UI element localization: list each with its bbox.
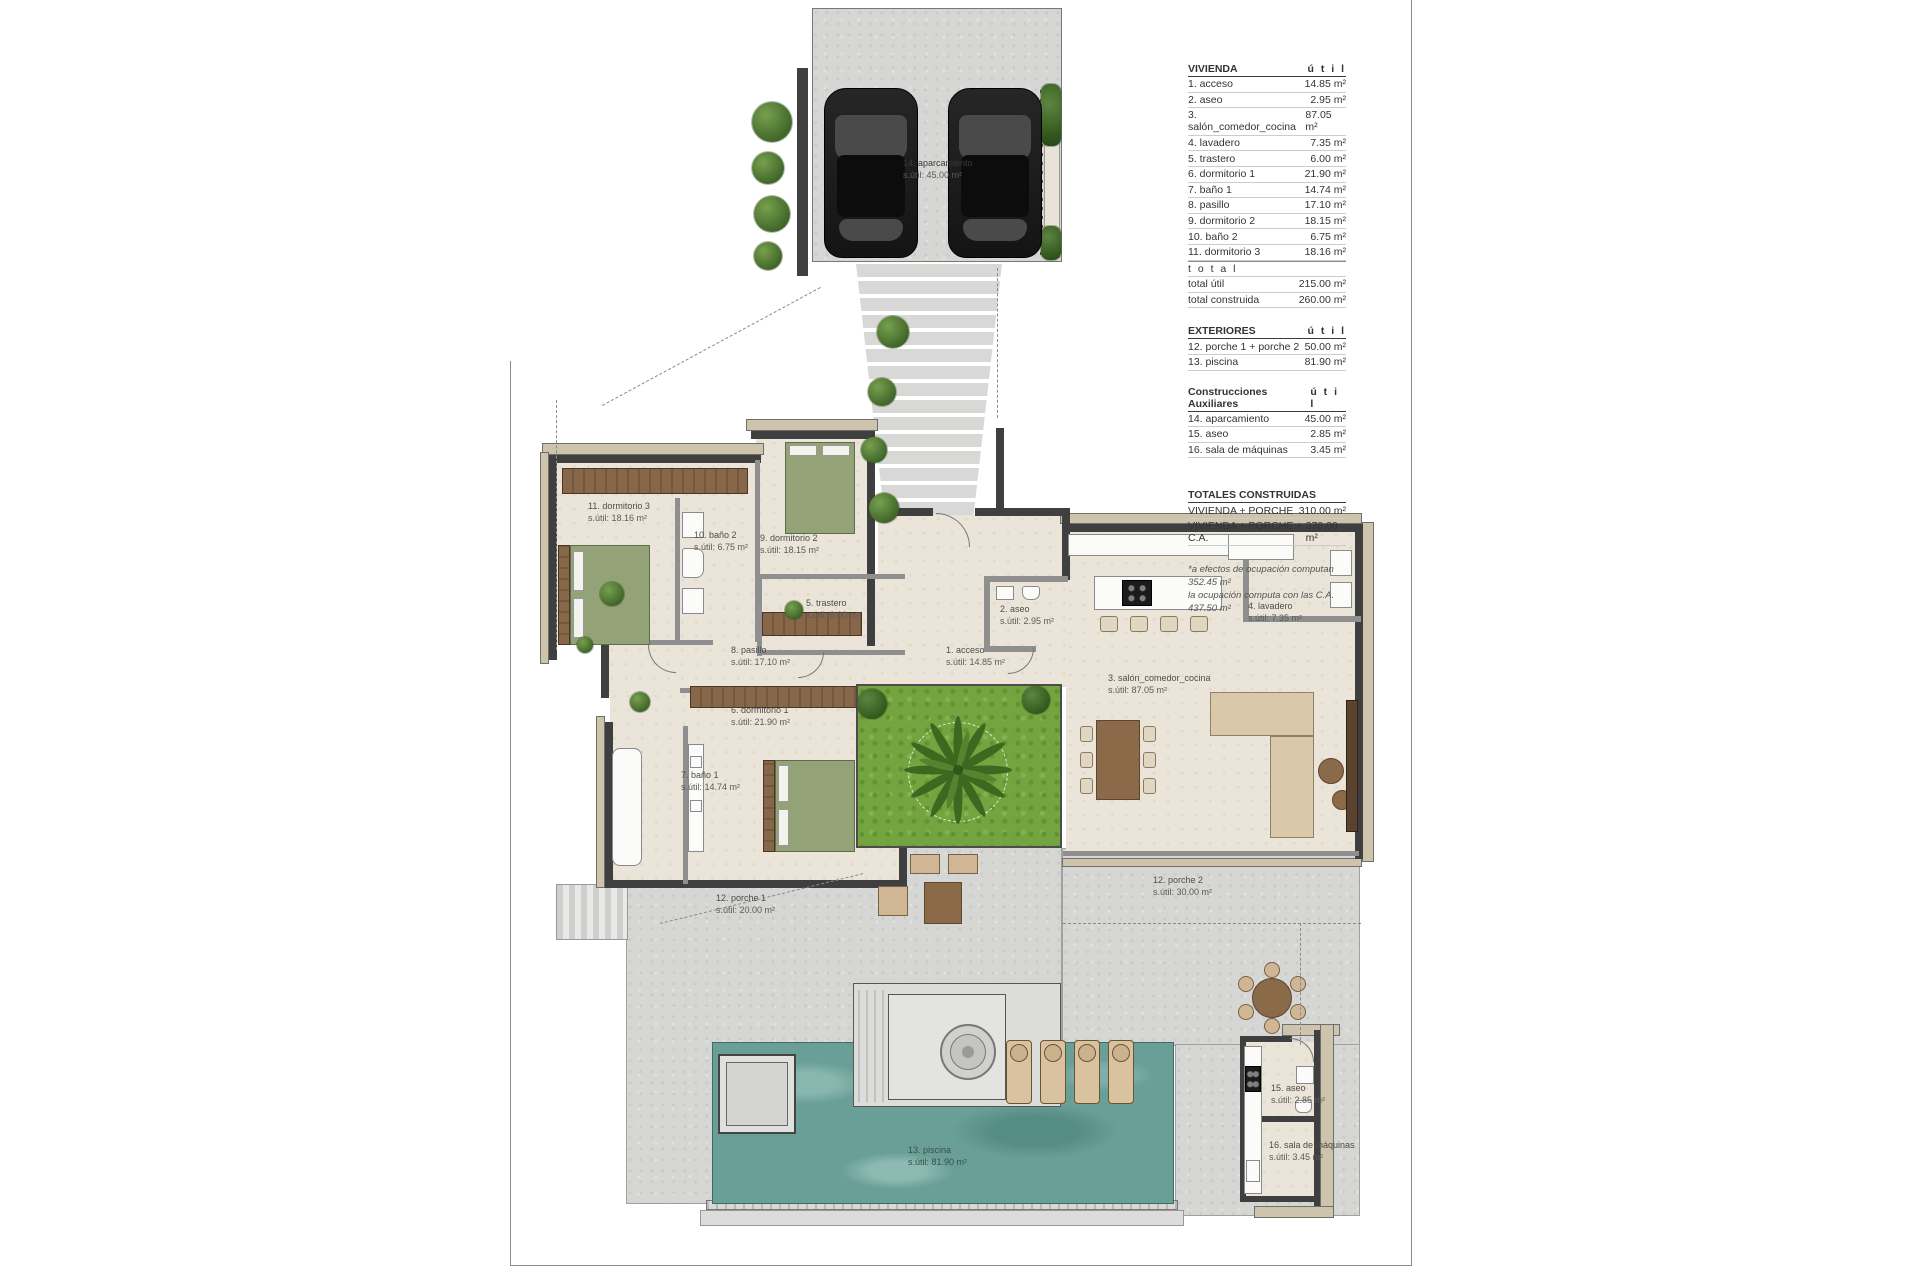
- sun-lounger: [1040, 1040, 1066, 1104]
- util-header: ú t i l: [1310, 386, 1346, 410]
- bed-headboard: [558, 545, 570, 645]
- bath-shower: [682, 588, 704, 614]
- util-header: ú t i l: [1308, 63, 1347, 75]
- wardrobe: [562, 468, 748, 494]
- room-label-sala-maquinas: 16. sala de máquinass.útil: 3.45 m²: [1269, 1139, 1355, 1163]
- legend-row: 7. baño 114.74 m²: [1188, 183, 1346, 199]
- util-header: ú t i l: [1308, 325, 1347, 337]
- outdoor-dining-chair: [1238, 976, 1254, 992]
- legend-row: VIVIENDA + PORCHE + C.A.370.00 m²: [1188, 519, 1346, 547]
- sun-lounger: [1006, 1040, 1032, 1104]
- bed-headboard: [763, 760, 775, 852]
- sofa: [1210, 692, 1314, 736]
- pool-deck-outer: [700, 1210, 1184, 1226]
- legend-title: EXTERIORES: [1188, 325, 1256, 337]
- dining-chair: [1143, 726, 1156, 742]
- sofa-chaise: [1270, 736, 1314, 838]
- legend-row: 2. aseo2.95 m²: [1188, 93, 1346, 109]
- outdoor-dining-chair: [1238, 1004, 1254, 1020]
- dashed-boundary: [556, 400, 557, 650]
- legend-row: 10. baño 26.75 m²: [1188, 229, 1346, 245]
- wall-segment: [975, 508, 1070, 516]
- bed-pillow: [573, 598, 584, 638]
- outdoor-chair: [948, 854, 978, 874]
- wall-segment: [867, 431, 875, 646]
- legend-title: TOTALES CONSTRUIDAS: [1188, 489, 1316, 501]
- room-label-dormitorio-2: 9. dormitorio 2s.útil: 18.15 m²: [760, 532, 819, 556]
- bush-icon: [754, 242, 782, 270]
- legend-row: 1. acceso14.85 m²: [1188, 77, 1346, 93]
- legend-title: Construcciones Auxiliares: [1188, 386, 1310, 410]
- dining-table: [1096, 720, 1140, 800]
- room-label-porche-1: 12. porche 1s.útil: 20.00 m²: [716, 892, 775, 916]
- legend-total-row: total útil215.00 m²: [1188, 277, 1346, 293]
- bathtub: [612, 748, 642, 866]
- page-border-left: [510, 361, 511, 1265]
- legend-row: 9. dormitorio 218.15 m²: [1188, 214, 1346, 230]
- bar-stool: [1160, 616, 1178, 632]
- outer-band: [1362, 522, 1374, 862]
- outdoor-dining-chair: [1290, 976, 1306, 992]
- legend-row: 11. dormitorio 318.16 m²: [1188, 245, 1346, 261]
- hedge-icon: [1041, 226, 1061, 260]
- garage-wall-left: [797, 68, 808, 276]
- outer-band: [540, 452, 549, 664]
- outdoor-dining-chair: [1264, 1018, 1280, 1034]
- bush-icon: [857, 689, 887, 719]
- outer-band: [596, 716, 605, 888]
- side-table: [1318, 758, 1344, 784]
- room-label-aseo: 2. aseos.útil: 2.95 m²: [1000, 603, 1054, 627]
- floor-plan-sheet: 14. aparcamientos.útil: 45.00 m² 11. dor…: [0, 0, 1920, 1280]
- room-label-piscina: 13. piscinas.útil: 81.90 m²: [908, 1144, 967, 1168]
- wall-segment: [605, 880, 907, 888]
- bed-pillow: [789, 445, 817, 456]
- bush-icon: [630, 692, 650, 712]
- bush-icon: [868, 378, 896, 406]
- bar-stool: [1130, 616, 1148, 632]
- sun-lounger: [1108, 1040, 1134, 1104]
- wall-segment: [984, 576, 1068, 582]
- room-label-dormitorio-1: 6. dormitorio 1s.útil: 21.90 m²: [731, 704, 790, 728]
- annex-band-bottom: [1254, 1206, 1334, 1218]
- legend-row: 4. lavadero7.35 m²: [1188, 136, 1346, 152]
- room-label-dormitorio-3: 11. dormitorio 3s.útil: 18.16 m²: [588, 500, 650, 524]
- wall-segment: [1240, 1196, 1318, 1202]
- room-label-trastero: 5. trasteros.útil: 6.00 m²: [806, 597, 860, 621]
- dining-chair: [1080, 778, 1093, 794]
- legend-row: 5. trastero6.00 m²: [1188, 151, 1346, 167]
- wall-segment: [675, 498, 680, 643]
- legend-vivienda: VIVIENDAú t i l 1. acceso14.85 m² 2. ase…: [1188, 62, 1346, 308]
- dining-chair: [1143, 778, 1156, 794]
- wall-segment: [996, 428, 1004, 516]
- aseo-toilet: [1022, 586, 1040, 600]
- dining-chair: [1080, 752, 1093, 768]
- outdoor-pouf: [878, 886, 908, 916]
- bush-icon: [752, 102, 792, 142]
- vanity-sink: [690, 800, 702, 812]
- pool-platform-steps: [858, 990, 884, 1102]
- outer-band: [746, 419, 878, 431]
- room-label-pasillo: 8. pasillos.útil: 17.10 m²: [731, 644, 790, 668]
- legend-row: VIVIENDA + PORCHE310.00 m²: [1188, 503, 1346, 519]
- room-label-aseo-exterior: 15. aseos.útil: 2.85 m²: [1271, 1082, 1325, 1106]
- legend-row: 14. aparcamiento45.00 m²: [1188, 412, 1346, 428]
- legend-total-row: total construida260.00 m²: [1188, 293, 1346, 309]
- dining-chair: [1080, 726, 1093, 742]
- palm-tree-icon: [898, 710, 1018, 830]
- legend-totales: TOTALES CONSTRUIDAS VIVIENDA + PORCHE310…: [1188, 488, 1346, 615]
- room-label-bano-1: 7. baño 1s.útil: 14.74 m²: [681, 769, 740, 793]
- page-border-bottom: [510, 1265, 1412, 1266]
- outer-band: [542, 443, 764, 455]
- bush-icon: [785, 601, 803, 619]
- outdoor-dining-chair: [1264, 962, 1280, 978]
- outer-band: [1062, 858, 1362, 867]
- pool-pad-inner: [726, 1062, 788, 1126]
- bar-stool: [1100, 616, 1118, 632]
- dining-chair: [1143, 752, 1156, 768]
- legend-row: 12. porche 1 + porche 250.00 m²: [1188, 339, 1346, 355]
- outdoor-sink: [1246, 1160, 1260, 1182]
- dashed-boundary: [602, 287, 821, 406]
- room-label-aparcamiento: 14. aparcamientos.útil: 45.00 m²: [903, 157, 973, 181]
- wall-segment: [984, 576, 990, 652]
- west-steps-pad: [556, 884, 628, 940]
- legend-row: 8. pasillo17.10 m²: [1188, 198, 1346, 214]
- bed-pillow: [573, 551, 584, 591]
- outdoor-cooktop-icon: [1245, 1066, 1261, 1092]
- legend-row: 6. dormitorio 121.90 m²: [1188, 167, 1346, 183]
- outdoor-dining-table: [1252, 978, 1292, 1018]
- area-legend: VIVIENDAú t i l 1. acceso14.85 m² 2. ase…: [1188, 62, 1346, 628]
- page-border-right: [1411, 0, 1412, 1266]
- dashed-boundary: [1300, 923, 1301, 1045]
- bed-pillow: [822, 445, 850, 456]
- vanity-sink: [690, 756, 702, 768]
- annex-band-right: [1320, 1024, 1334, 1218]
- wall-segment: [757, 574, 905, 579]
- bush-icon: [754, 196, 790, 232]
- dashed-boundary: [997, 268, 998, 418]
- bush-icon: [877, 316, 909, 348]
- hedge-icon: [1041, 84, 1061, 146]
- legend-row: 15. aseo2.85 m²: [1188, 427, 1346, 443]
- legend-row: 3. salón_comedor_cocina87.05 m²: [1188, 108, 1346, 136]
- legend-row: 13. piscina81.90 m²: [1188, 355, 1346, 371]
- bush-icon: [861, 437, 887, 463]
- legend-title: VIVIENDA: [1188, 63, 1238, 75]
- cooktop-icon: [1122, 580, 1152, 606]
- bush-icon: [752, 152, 784, 184]
- room-label-acceso: 1. accesos.útil: 14.85 m²: [946, 644, 1005, 668]
- legend-auxiliares: Construcciones Auxiliaresú t i l 14. apa…: [1188, 385, 1346, 459]
- aseo-sink: [996, 586, 1014, 600]
- room-label-salon: 3. salón_comedor_cocinas.útil: 87.05 m²: [1108, 672, 1211, 696]
- legend-row: 16. sala de máquinas3.45 m²: [1188, 443, 1346, 459]
- outdoor-coffee-table: [924, 882, 962, 924]
- legend-exteriores: EXTERIORESú t i l 12. porche 1 + porche …: [1188, 324, 1346, 370]
- wall-segment: [1314, 1030, 1320, 1206]
- legend-footnote: *a efectos de ocupación computan 352.45 …: [1188, 563, 1346, 615]
- dashed-boundary: [1063, 923, 1361, 924]
- bush-icon: [1022, 686, 1050, 714]
- room-label-bano-2: 10. baño 2s.útil: 6.75 m²: [694, 529, 748, 553]
- bush-icon: [577, 637, 593, 653]
- legend-total-separator: t o t a l: [1188, 261, 1346, 278]
- bed-pillow: [778, 809, 789, 846]
- tv-console: [1346, 700, 1358, 832]
- wall-segment: [751, 431, 875, 439]
- outdoor-chair: [910, 854, 940, 874]
- wall-segment: [1240, 1036, 1292, 1042]
- wall-segment: [549, 455, 761, 463]
- bush-icon: [600, 582, 624, 606]
- room-label-porche-2: 12. porche 2s.útil: 30.00 m²: [1153, 874, 1212, 898]
- wall-segment: [1063, 851, 1359, 856]
- bush-icon: [869, 493, 899, 523]
- outdoor-dining-chair: [1290, 1004, 1306, 1020]
- sun-lounger: [1074, 1040, 1100, 1104]
- spa-circle-inner: [962, 1046, 974, 1058]
- bed-pillow: [778, 765, 789, 802]
